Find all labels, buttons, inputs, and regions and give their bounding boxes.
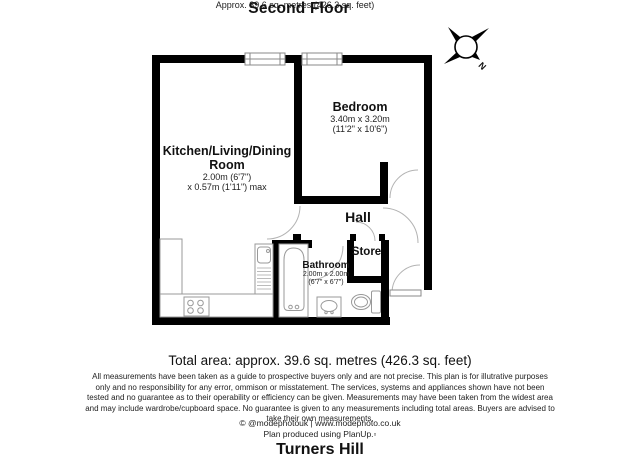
window-icon xyxy=(245,53,285,65)
entrance-door-leaf xyxy=(390,290,421,296)
location-title: Turners Hill xyxy=(0,441,640,459)
bathroom-dim1: 2.00m x 2.00m xyxy=(296,271,356,279)
kitchen-counter-icon xyxy=(160,239,273,317)
disclaimer-text: All measurements have been taken as a gu… xyxy=(85,372,555,425)
store-label: Store xyxy=(346,246,387,258)
copyright-line: © @modephotouk | www.modephoto.co.uk xyxy=(0,418,640,429)
bedroom-dim1: 3.40m x 3.20m xyxy=(300,114,420,124)
bedroom-label: Bedroom 3.40m x 3.20m (11'2" x 10'6") xyxy=(300,100,420,135)
floorplan-page: Second Floor Approx. 39.6 sq. metres (42… xyxy=(0,0,640,466)
compass-rose-icon xyxy=(444,27,489,64)
draining-board-icon xyxy=(257,268,271,289)
total-area: Total area: approx. 39.6 sq. metres (426… xyxy=(0,353,640,368)
bathroom-name: Bathroom xyxy=(296,260,356,271)
entrance-door-arc xyxy=(392,265,420,293)
kitchen-name-line2: Room xyxy=(152,158,302,172)
produced-by-line: Plan produced using PlanUp.▫ xyxy=(0,429,640,440)
bedroom-door-arc xyxy=(390,170,418,198)
washbasin-icon xyxy=(317,297,341,317)
kitchen-name-line1: Kitchen/Living/Dining xyxy=(152,144,302,158)
bedroom-dim2: (11'2" x 10'6") xyxy=(300,124,420,134)
hob-icon xyxy=(184,297,209,316)
toilet-icon xyxy=(352,291,381,313)
hall-door-arc xyxy=(383,208,418,243)
kitchen-dim2: x 0.57m (1'11") max xyxy=(152,182,302,192)
bathroom-dim2: (6'7" x 6'7") xyxy=(296,279,356,287)
bedroom-name: Bedroom xyxy=(300,100,420,114)
kitchen-label: Kitchen/Living/Dining Room 2.00m (6'7") … xyxy=(152,144,302,193)
kitchen-dim1: 2.00m (6'7") xyxy=(152,172,302,182)
window-icon xyxy=(302,53,342,65)
hall-label: Hall xyxy=(330,209,386,225)
bathroom-label: Bathroom 2.00m x 2.00m (6'7" x 6'7") xyxy=(296,260,356,287)
